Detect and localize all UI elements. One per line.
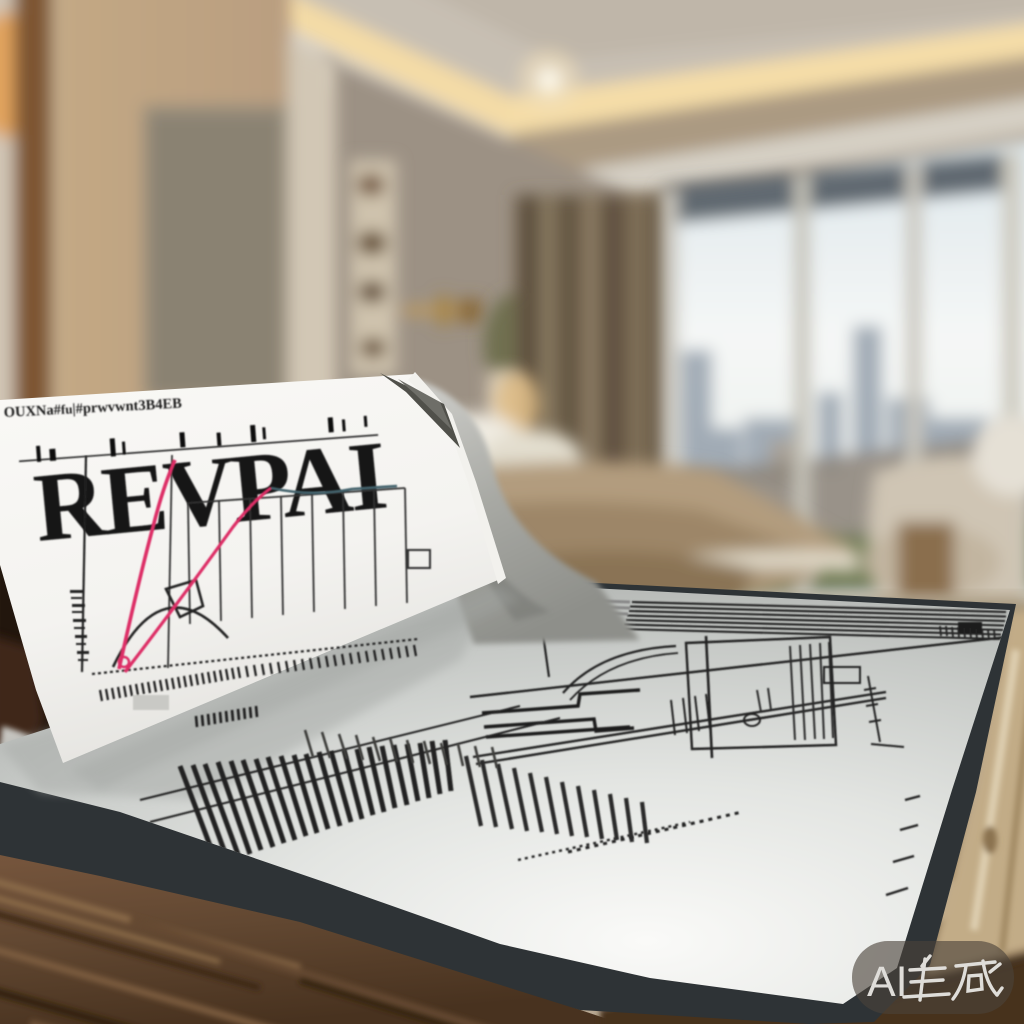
svg-text:AI: AI (867, 958, 908, 1006)
